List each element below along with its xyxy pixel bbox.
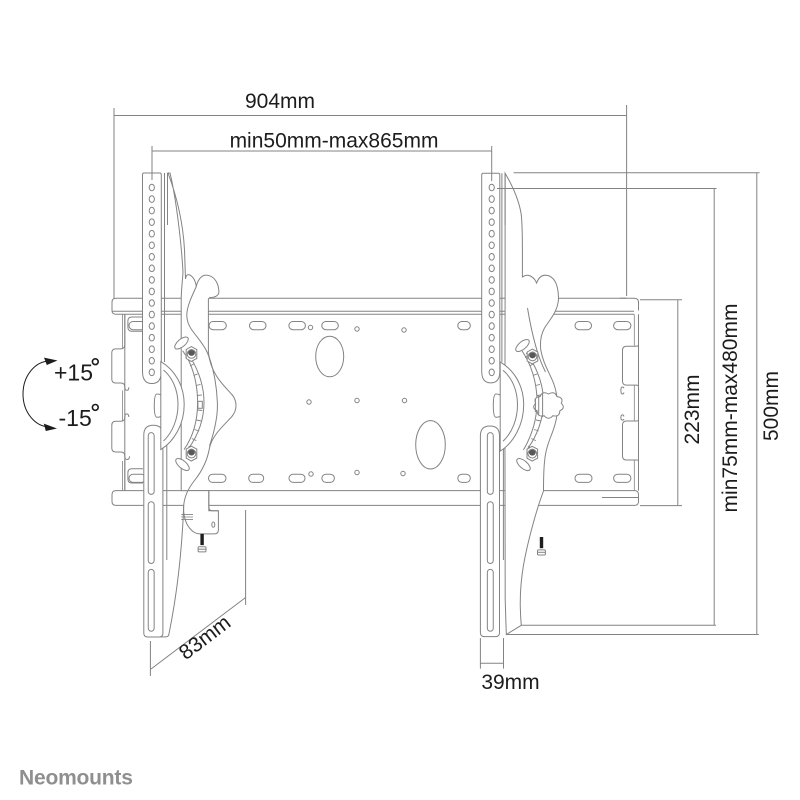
- svg-text:39mm: 39mm: [481, 671, 539, 694]
- svg-text:500mm: 500mm: [760, 371, 783, 441]
- svg-text:+15: +15: [54, 360, 93, 386]
- svg-text:-15: -15: [59, 405, 92, 431]
- svg-text:min50mm-max865mm: min50mm-max865mm: [230, 130, 439, 153]
- svg-text:223mm: 223mm: [681, 374, 704, 444]
- svg-text:min75mm-max480mm: min75mm-max480mm: [719, 304, 742, 513]
- svg-text:Neomounts: Neomounts: [19, 767, 133, 790]
- svg-text:904mm: 904mm: [245, 90, 315, 113]
